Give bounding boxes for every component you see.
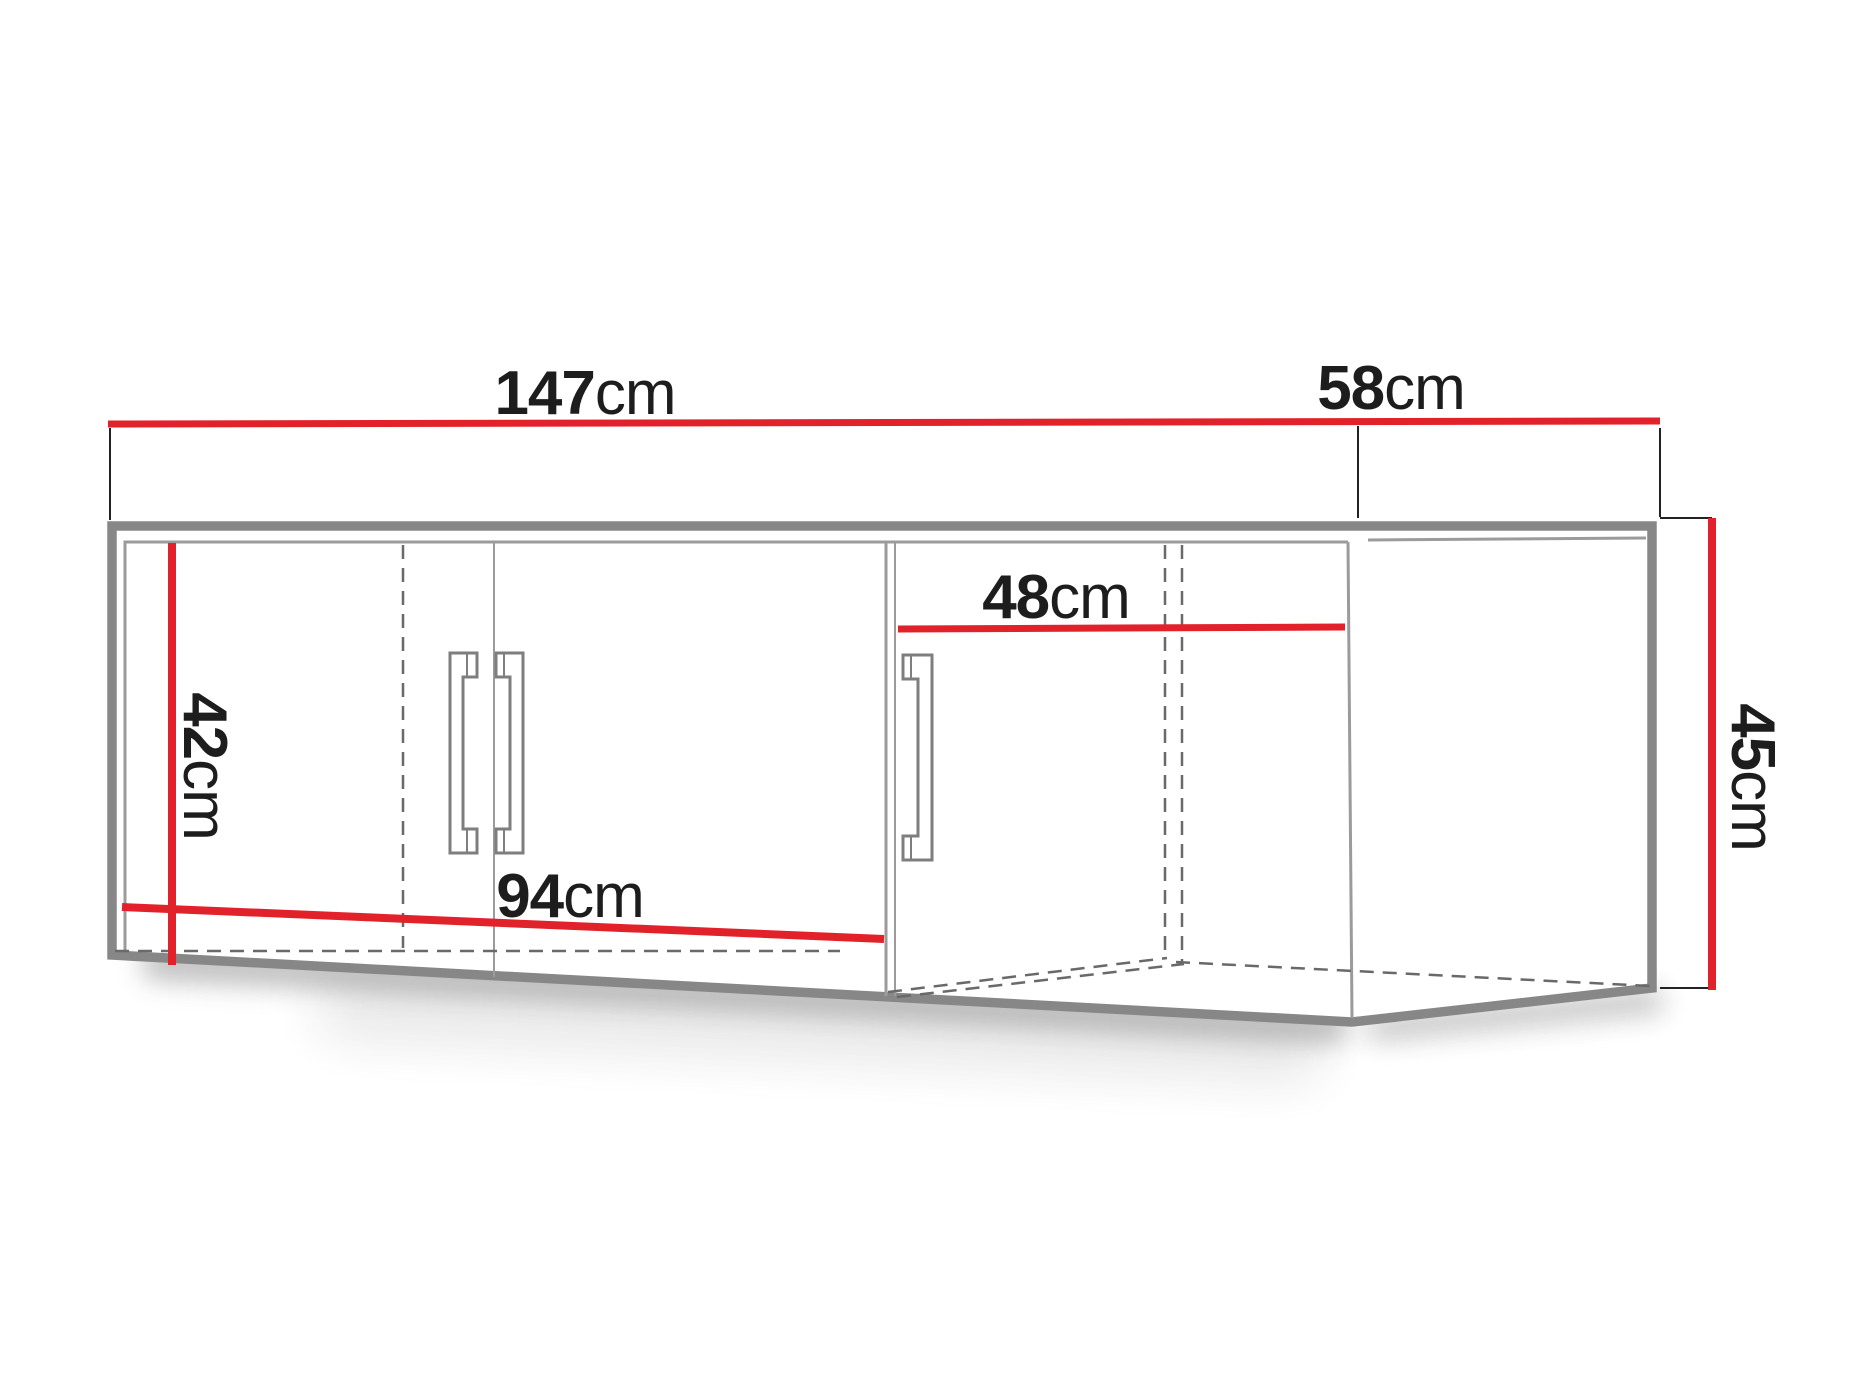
dim-label-left-inner-width: 94cm	[496, 866, 644, 928]
dim-value-42: 42	[170, 692, 239, 759]
dim-unit-147: cm	[595, 359, 676, 428]
dim-label-front-width: 147cm	[494, 363, 675, 425]
dim-value-45: 45	[1718, 703, 1787, 770]
dim-unit-58: cm	[1384, 354, 1465, 423]
dim-label-corner-inner-width: 48cm	[982, 567, 1130, 629]
dim-unit-94: cm	[563, 862, 644, 931]
cabinet-line-drawing	[0, 0, 1864, 1398]
dim-label-interior-height: 42cm	[173, 692, 235, 840]
dim-unit-45: cm	[1718, 770, 1787, 851]
cabinet-body	[112, 526, 1652, 1022]
dim-value-94: 94	[496, 862, 563, 931]
dim-unit-48: cm	[1049, 563, 1130, 632]
dim-value-58: 58	[1317, 354, 1384, 423]
dim-value-147: 147	[494, 359, 594, 428]
cabinet-outline	[112, 526, 1652, 1022]
cabinet-dimension-diagram: 147cm 58cm 48cm 42cm 94cm 45cm	[0, 0, 1864, 1398]
dim-label-side-height: 45cm	[1721, 703, 1783, 851]
dim-value-48: 48	[982, 563, 1049, 632]
dim-label-side-depth: 58cm	[1317, 358, 1465, 420]
dim-unit-42: cm	[170, 759, 239, 840]
corner-panel-inner-edge	[1368, 538, 1646, 540]
